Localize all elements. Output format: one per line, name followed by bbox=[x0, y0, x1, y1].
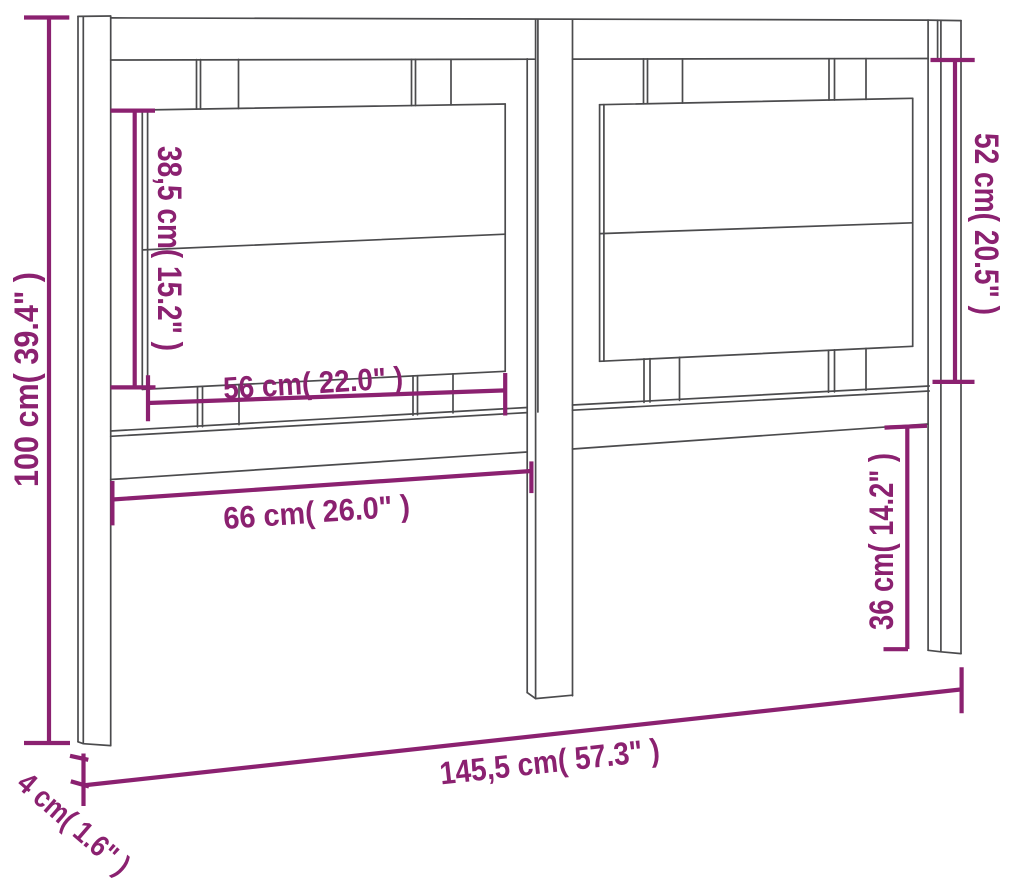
svg-text:100 cm( 39.4" ): 100 cm( 39.4" ) bbox=[8, 272, 46, 487]
svg-text:36 cm( 14.2" ): 36 cm( 14.2" ) bbox=[863, 453, 901, 630]
svg-text:52 cm( 20.5" ): 52 cm( 20.5" ) bbox=[967, 133, 1005, 315]
svg-text:38,5 cm( 15.2" ): 38,5 cm( 15.2" ) bbox=[150, 146, 188, 351]
